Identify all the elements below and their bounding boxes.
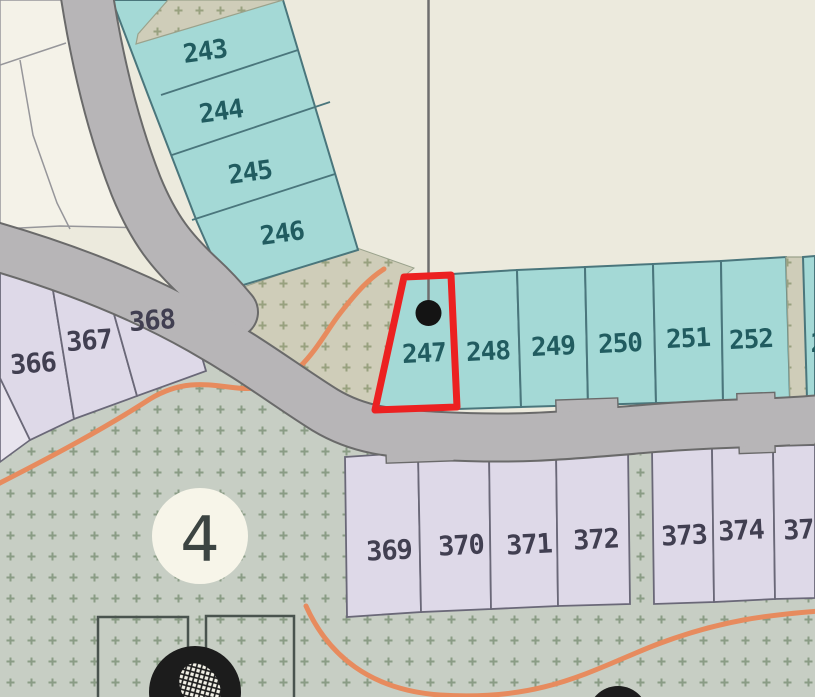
lot-label-367: 367 <box>65 324 113 358</box>
lot-label-249: 249 <box>530 331 575 363</box>
lot-label-246: 246 <box>258 216 306 252</box>
lot-label-369: 369 <box>365 534 412 567</box>
lot-label-partial: 2 <box>811 329 815 359</box>
lot-label-245: 245 <box>226 155 274 191</box>
lot-label-368: 368 <box>128 304 176 338</box>
lot-label-243: 243 <box>181 34 229 70</box>
lot-label-372: 372 <box>572 523 619 556</box>
lot-label-247: 247 <box>401 338 446 370</box>
subdivision-map: 243 244 245 246 247 248 249 250 251 252 … <box>0 0 815 697</box>
lot-label-374: 374 <box>717 514 765 547</box>
phase-marker: 4 <box>152 488 248 584</box>
location-dot-icon[interactable] <box>416 300 442 326</box>
lot-label-370: 370 <box>437 529 484 562</box>
lot-label-250: 250 <box>597 328 643 360</box>
lot-label-248: 248 <box>465 336 511 368</box>
phase-number: 4 <box>180 503 219 576</box>
lot-label-252: 252 <box>728 324 773 356</box>
lot-label-251: 251 <box>665 323 711 355</box>
lot-label-366: 366 <box>9 347 57 381</box>
lot-label-373: 373 <box>660 519 707 552</box>
lot-label-244: 244 <box>197 94 245 130</box>
lot-label-375: 375 <box>782 513 815 546</box>
lot-label-371: 371 <box>505 528 552 561</box>
